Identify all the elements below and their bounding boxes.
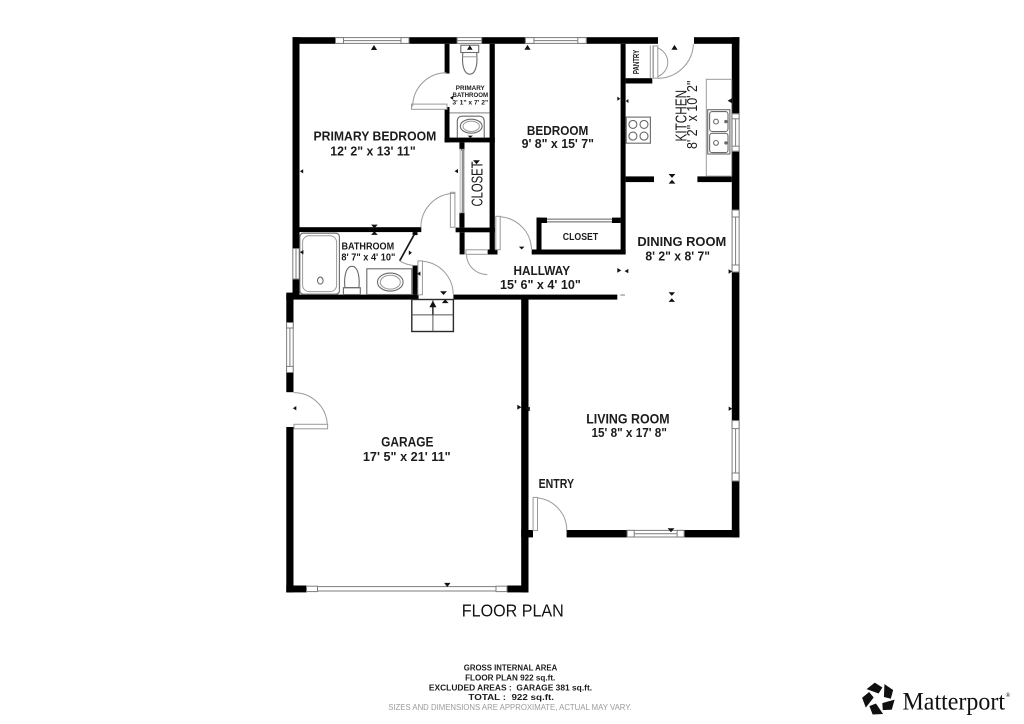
svg-text:17' 5" x 21' 11": 17' 5" x 21' 11" xyxy=(363,450,451,464)
svg-text:15' 6" x 4' 10": 15' 6" x 4' 10" xyxy=(500,278,581,292)
svg-text:BATHROOM: BATHROOM xyxy=(341,241,394,253)
svg-text:ENTRY: ENTRY xyxy=(539,477,575,491)
svg-text:GARAGE: GARAGE xyxy=(381,434,433,449)
svg-text:8' 7" x 4' 10": 8' 7" x 4' 10" xyxy=(341,252,395,263)
svg-text:TOTAL : 922 sq.ft.: TOTAL : 922 sq.ft. xyxy=(468,693,554,702)
svg-text:FLOOR PLAN: FLOOR PLAN xyxy=(462,601,564,621)
svg-text:PANTRY: PANTRY xyxy=(631,50,641,75)
svg-text:12' 2" x 13' 11": 12' 2" x 13' 11" xyxy=(330,144,416,158)
svg-text:®: ® xyxy=(1006,692,1011,699)
svg-text:Matterport: Matterport xyxy=(903,689,1006,716)
svg-text:9' 8" x 15' 7": 9' 8" x 15' 7" xyxy=(522,137,594,151)
svg-text:8' 2" x 8' 7": 8' 2" x 8' 7" xyxy=(645,249,710,263)
svg-text:CLOSET: CLOSET xyxy=(563,231,599,243)
svg-text:CLOSET: CLOSET xyxy=(470,161,487,206)
svg-text:GROSS INTERNAL AREA: GROSS INTERNAL AREA xyxy=(464,664,558,673)
svg-text:DINING ROOM: DINING ROOM xyxy=(637,234,726,249)
svg-text:PRIMARY: PRIMARY xyxy=(456,85,486,92)
svg-text:BEDROOM: BEDROOM xyxy=(527,123,588,138)
svg-text:HALLWAY: HALLWAY xyxy=(514,263,571,278)
svg-text:EXCLUDED AREAS : GARAGE 381 s: EXCLUDED AREAS : GARAGE 381 sq.ft. xyxy=(429,683,592,692)
svg-text:LIVING ROOM: LIVING ROOM xyxy=(586,412,669,427)
svg-text:FLOOR PLAN 922 sq.ft.: FLOOR PLAN 922 sq.ft. xyxy=(465,674,555,683)
svg-text:15' 8" x 17' 8": 15' 8" x 17' 8" xyxy=(592,426,667,440)
svg-text:PRIMARY BEDROOM: PRIMARY BEDROOM xyxy=(314,129,437,144)
svg-text:8' 2" x 10' 2": 8' 2" x 10' 2" xyxy=(684,81,701,149)
svg-text:3' 1" x 7' 2": 3' 1" x 7' 2" xyxy=(452,99,488,106)
svg-text:BATHROOM: BATHROOM xyxy=(453,92,489,99)
svg-text:SIZES AND DIMENSIONS ARE APPRO: SIZES AND DIMENSIONS ARE APPROXIMATE, AC… xyxy=(388,703,631,712)
